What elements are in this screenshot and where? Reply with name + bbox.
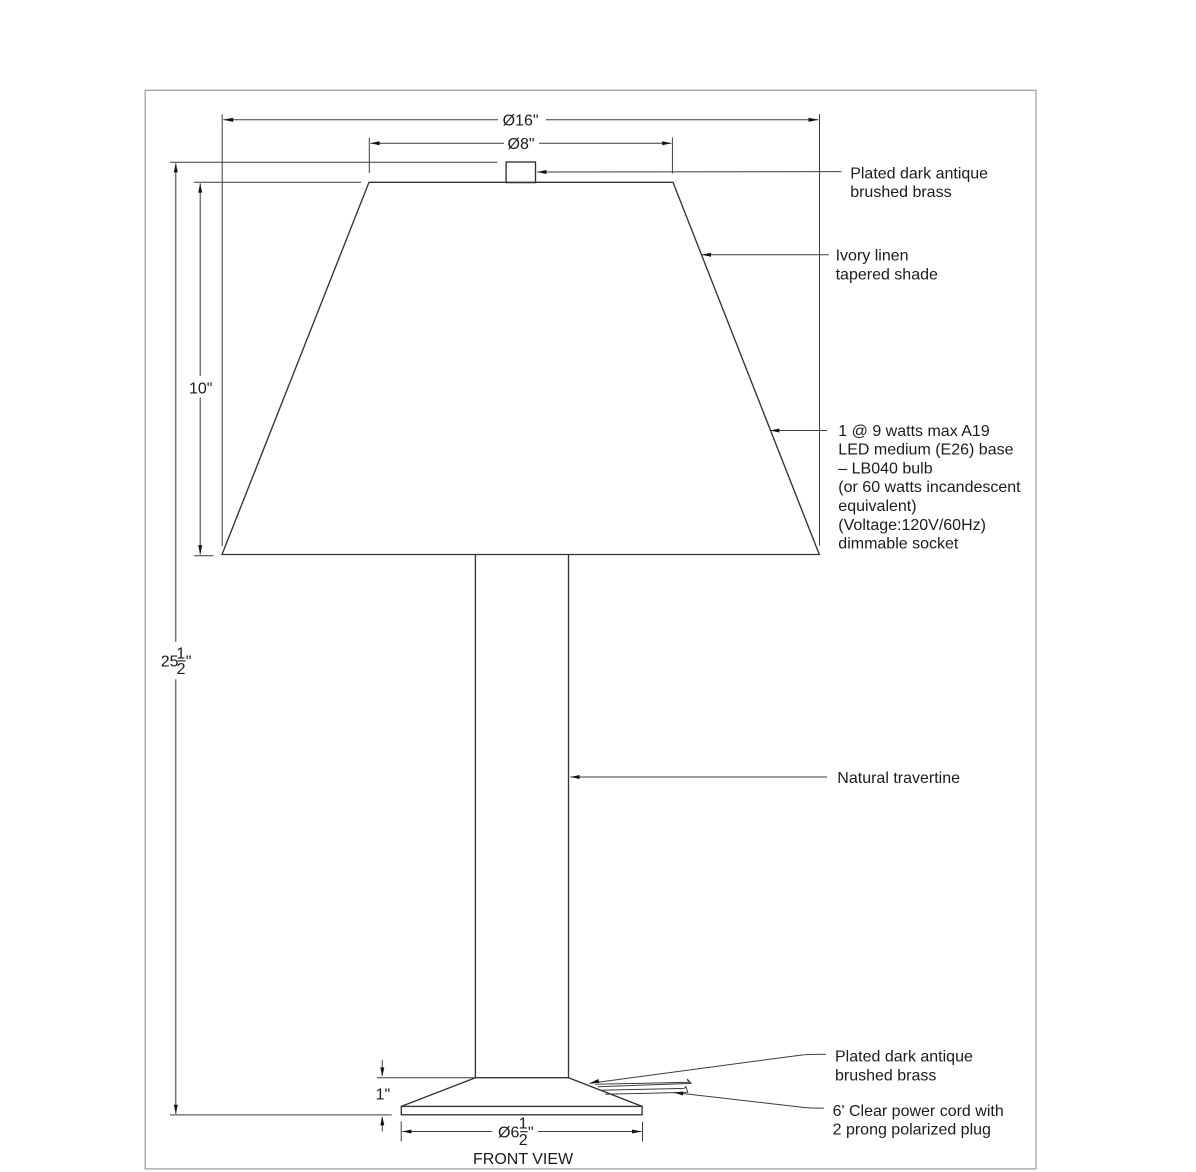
svg-text:FRONT VIEW: FRONT VIEW	[473, 1151, 574, 1168]
svg-text:Ø8": Ø8"	[508, 136, 535, 153]
svg-text:(Voltage:120V/60Hz): (Voltage:120V/60Hz)	[838, 517, 986, 534]
svg-text:Ivory linen: Ivory linen	[836, 248, 909, 265]
svg-text:": "	[186, 654, 192, 671]
svg-text:– LB040 bulb: – LB040 bulb	[838, 460, 932, 477]
svg-text:tapered shade: tapered shade	[836, 266, 938, 283]
svg-text:brushed brass: brushed brass	[835, 1067, 936, 1084]
svg-text:Plated dark antique: Plated dark antique	[835, 1049, 973, 1066]
svg-text:1: 1	[519, 1116, 528, 1133]
svg-text:equivalent): equivalent)	[838, 498, 916, 515]
svg-text:LED medium (E26) base: LED medium (E26) base	[838, 442, 1013, 459]
svg-text:(or 60 watts incandescent: (or 60 watts incandescent	[838, 479, 1021, 496]
svg-text:Ø16": Ø16"	[503, 112, 539, 129]
svg-text:10": 10"	[189, 380, 212, 397]
svg-text:6' Clear power cord with: 6' Clear power cord with	[833, 1103, 1004, 1120]
svg-text:1 @ 9 watts max A19: 1 @ 9 watts max A19	[838, 423, 990, 440]
svg-text:2 prong polarized plug: 2 prong polarized plug	[833, 1122, 991, 1139]
svg-text:": "	[528, 1125, 534, 1142]
svg-text:Ø6: Ø6	[498, 1125, 519, 1142]
svg-text:Plated dark antique: Plated dark antique	[850, 165, 988, 182]
svg-text:Natural travertine: Natural travertine	[837, 770, 960, 787]
svg-text:2: 2	[519, 1132, 528, 1149]
svg-text:dimmable socket: dimmable socket	[838, 536, 959, 553]
svg-text:1": 1"	[376, 1087, 391, 1104]
svg-text:2: 2	[177, 661, 186, 678]
svg-text:brushed brass: brushed brass	[850, 184, 951, 201]
